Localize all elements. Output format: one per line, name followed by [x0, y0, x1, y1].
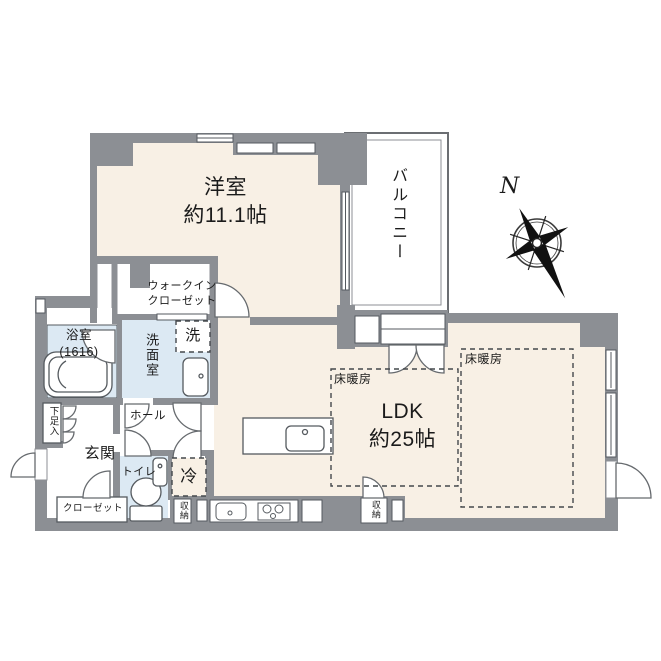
compass-needle-east	[539, 222, 571, 245]
western-room-label: 洋室 約11.1帖	[133, 174, 318, 229]
compass	[488, 192, 596, 314]
room-floors	[47, 143, 605, 518]
vanity-sink	[183, 358, 208, 396]
floor-heating-left-label: 床暖房	[334, 372, 372, 388]
compass-needle-south	[533, 243, 572, 301]
stove	[258, 503, 290, 520]
wall-niche-1	[237, 143, 273, 153]
toilet-label: トイレ	[118, 465, 160, 480]
balcony-label: バルコニー	[387, 167, 408, 262]
door-ldk-exterior	[616, 463, 651, 498]
compass-north-label: N	[500, 172, 520, 201]
sliding-door-small	[355, 316, 379, 343]
counter-box-b	[302, 500, 322, 522]
storage-right-label: 収納	[369, 500, 381, 519]
bathroom-upper-strip	[47, 308, 117, 325]
washer-label: 洗	[176, 326, 210, 346]
counter-box-c	[392, 500, 403, 521]
washroom-label: 洗面室	[143, 333, 160, 378]
front-door-opening	[35, 449, 47, 480]
toilet-tank	[130, 506, 162, 521]
floor-heating-right-label: 床暖房	[465, 352, 503, 368]
bathroom-label: 浴室 (1616)	[44, 327, 114, 360]
window-left	[36, 299, 45, 313]
door-front	[11, 453, 35, 477]
walkin-sliding-door	[157, 314, 207, 320]
closet-label: クローゼット	[61, 503, 125, 516]
fridge-label: 冷	[172, 466, 206, 488]
wall-niche-2	[277, 143, 315, 153]
shoe-cabinet-label: 下足入	[46, 406, 59, 436]
compass-needle-west	[503, 240, 535, 263]
storage-left-label: 収納	[177, 501, 189, 520]
floor-plan: 洋室 約11.1帖 バルコニー ウォークイン クローゼット 浴室 (1616) …	[0, 0, 661, 661]
ldk-label: LDK 約25帖	[330, 398, 475, 453]
hall-label: ホール	[126, 409, 170, 424]
walk-in-closet-label: ウォークイン クローゼット	[120, 279, 244, 308]
pipe-space	[97, 262, 112, 316]
counter-box-a	[197, 500, 207, 521]
entrance-label: 玄関	[78, 444, 122, 464]
